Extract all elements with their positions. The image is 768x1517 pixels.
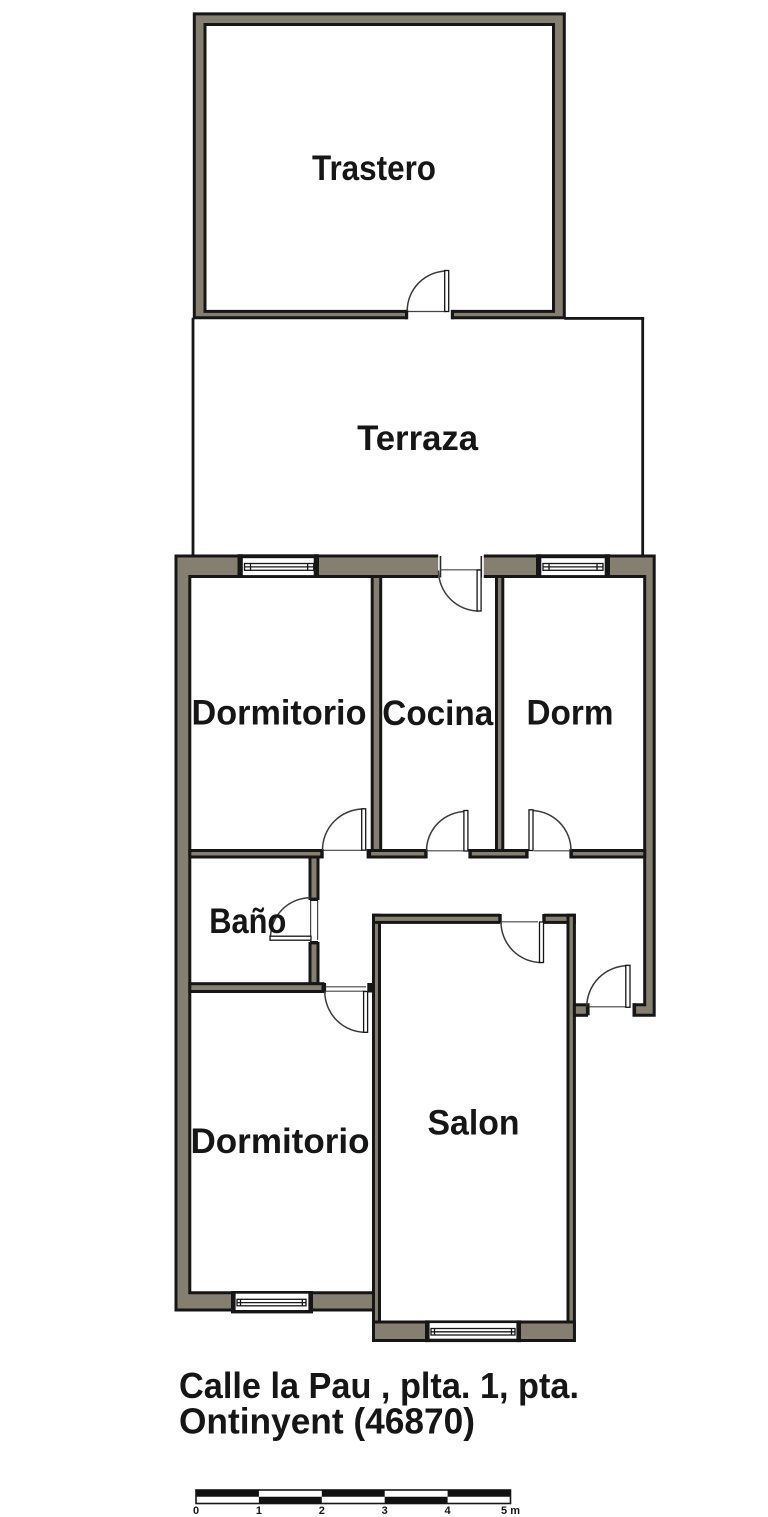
svg-text:4: 4 (445, 1505, 452, 1517)
svg-text:5 m: 5 m (501, 1505, 520, 1517)
svg-text:Trastero: Trastero (312, 149, 436, 188)
svg-text:Salon: Salon (428, 1104, 520, 1143)
svg-text:3: 3 (382, 1505, 388, 1517)
svg-text:0: 0 (193, 1505, 199, 1517)
svg-text:1: 1 (256, 1505, 262, 1517)
svg-text:Baño: Baño (209, 902, 286, 941)
svg-text:Dormitorio: Dormitorio (192, 694, 367, 733)
svg-text:Terraza: Terraza (357, 419, 479, 458)
svg-text:Dormitorio: Dormitorio (191, 1122, 370, 1161)
svg-text:Ontinyent (46870): Ontinyent (46870) (179, 1401, 475, 1442)
svg-text:Dorm: Dorm (527, 694, 614, 733)
svg-text:Cocina: Cocina (382, 694, 493, 733)
svg-text:2: 2 (319, 1505, 325, 1517)
